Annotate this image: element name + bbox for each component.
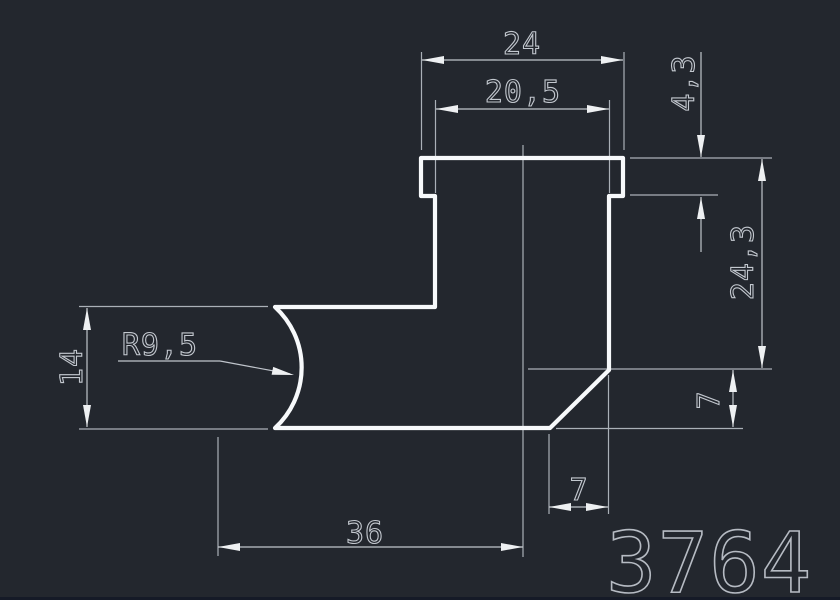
- arrowhead-down: [697, 135, 705, 157]
- dim-label-right-height: 24,3: [726, 224, 761, 300]
- arrowhead-up: [758, 159, 766, 181]
- arrowhead-up: [697, 197, 705, 219]
- cad-drawing: 24 20,5 4,3 24,3 7 14 R9,5 7 36 3764: [0, 0, 840, 600]
- arrowhead-up: [729, 370, 737, 392]
- extension-lines: [79, 52, 772, 557]
- arrowhead-down: [758, 346, 766, 368]
- dim-label-inner-width: 20,5: [485, 75, 561, 110]
- cad-drawing-canvas: 24 20,5 4,3 24,3 7 14 R9,5 7 36 3764: [0, 0, 840, 600]
- dim-label-chamfer-horizontal: 7: [569, 473, 588, 508]
- arrowhead-down: [83, 405, 91, 427]
- arrowhead-right: [501, 543, 523, 551]
- arrowhead-right: [601, 56, 623, 64]
- arrowhead-right: [587, 105, 609, 113]
- dim-label-outer-width: 24: [503, 27, 541, 62]
- part-number: 3764: [606, 514, 812, 600]
- arrowhead-down: [729, 405, 737, 427]
- dim-label-flange-thickness: 4,3: [667, 54, 702, 111]
- part-outline: [275, 158, 623, 428]
- arrowhead-up: [83, 308, 91, 330]
- dim-label-chamfer-vertical: 7: [692, 390, 727, 409]
- radius-arrowhead: [272, 367, 294, 375]
- arrowhead-left: [549, 503, 571, 511]
- dim-label-base-length: 36: [346, 516, 384, 551]
- arrowhead-left: [218, 543, 240, 551]
- arrowhead-left: [422, 56, 444, 64]
- arrowheads: [83, 56, 766, 551]
- dimension-lines: [87, 52, 762, 547]
- dimension-labels: 24 20,5 4,3 24,3 7 14 R9,5 7 36: [55, 27, 761, 551]
- radius-label: R9,5: [122, 328, 198, 363]
- arrowhead-left: [436, 105, 458, 113]
- arrowhead-right: [586, 503, 608, 511]
- dim-label-left-height: 14: [55, 348, 90, 386]
